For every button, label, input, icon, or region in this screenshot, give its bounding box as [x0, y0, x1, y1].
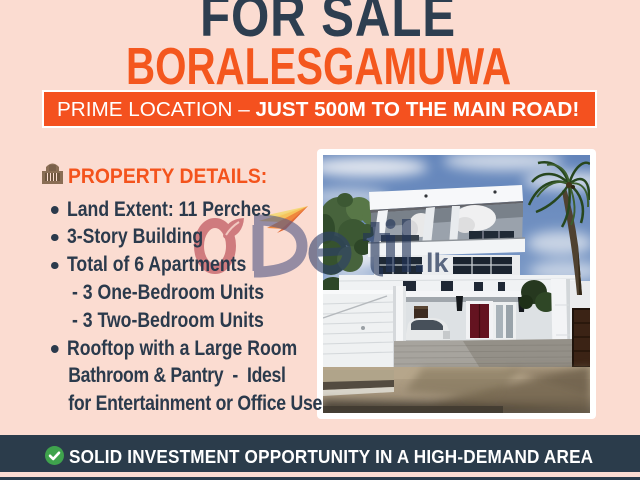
svg-text:lk: lk [426, 248, 450, 278]
